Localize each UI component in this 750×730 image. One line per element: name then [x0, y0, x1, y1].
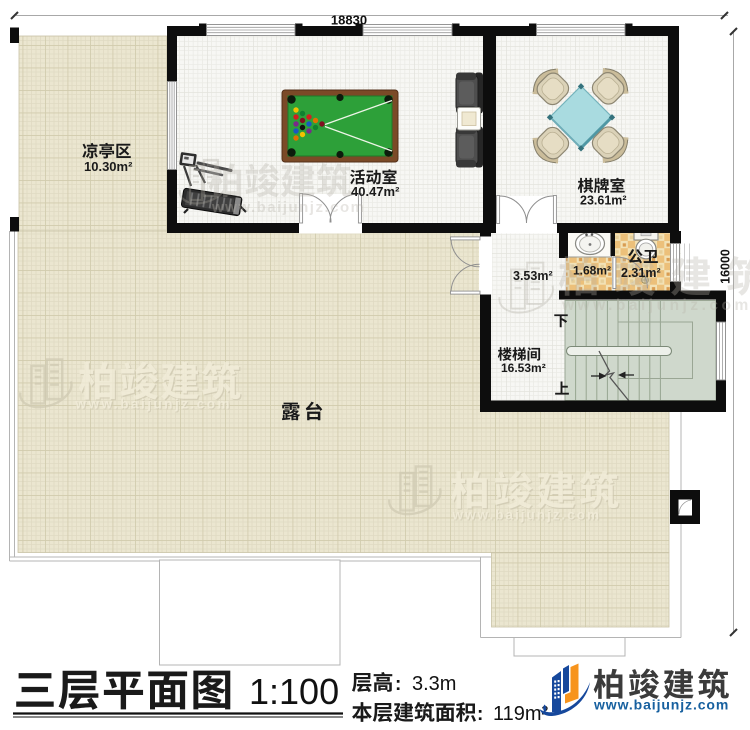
svg-text::: : — [477, 704, 483, 725]
svg-text:www.baijunjz.com: www.baijunjz.com — [75, 397, 233, 412]
svg-text:3.3m: 3.3m — [412, 673, 456, 695]
svg-text:www.baijunjz.com: www.baijunjz.com — [452, 508, 602, 523]
svg-text:16.53m²: 16.53m² — [501, 361, 546, 375]
svg-text:1:100: 1:100 — [249, 671, 339, 712]
svg-text::: : — [395, 674, 401, 695]
svg-text:1.68m²: 1.68m² — [573, 264, 611, 278]
svg-text:www.baijunjz.com: www.baijunjz.com — [211, 199, 365, 216]
svg-text:10.30m²: 10.30m² — [84, 159, 133, 174]
svg-text:119m²: 119m² — [493, 703, 549, 725]
svg-text:40.47m²: 40.47m² — [351, 184, 400, 199]
svg-text:www.baijunjz.com: www.baijunjz.com — [561, 297, 750, 314]
svg-text:3.53m²: 3.53m² — [513, 269, 553, 283]
svg-text:2.31m²: 2.31m² — [621, 266, 661, 280]
svg-text:23.61m²: 23.61m² — [580, 194, 627, 208]
svg-text:www.baijunjz.com: www.baijunjz.com — [593, 697, 729, 713]
